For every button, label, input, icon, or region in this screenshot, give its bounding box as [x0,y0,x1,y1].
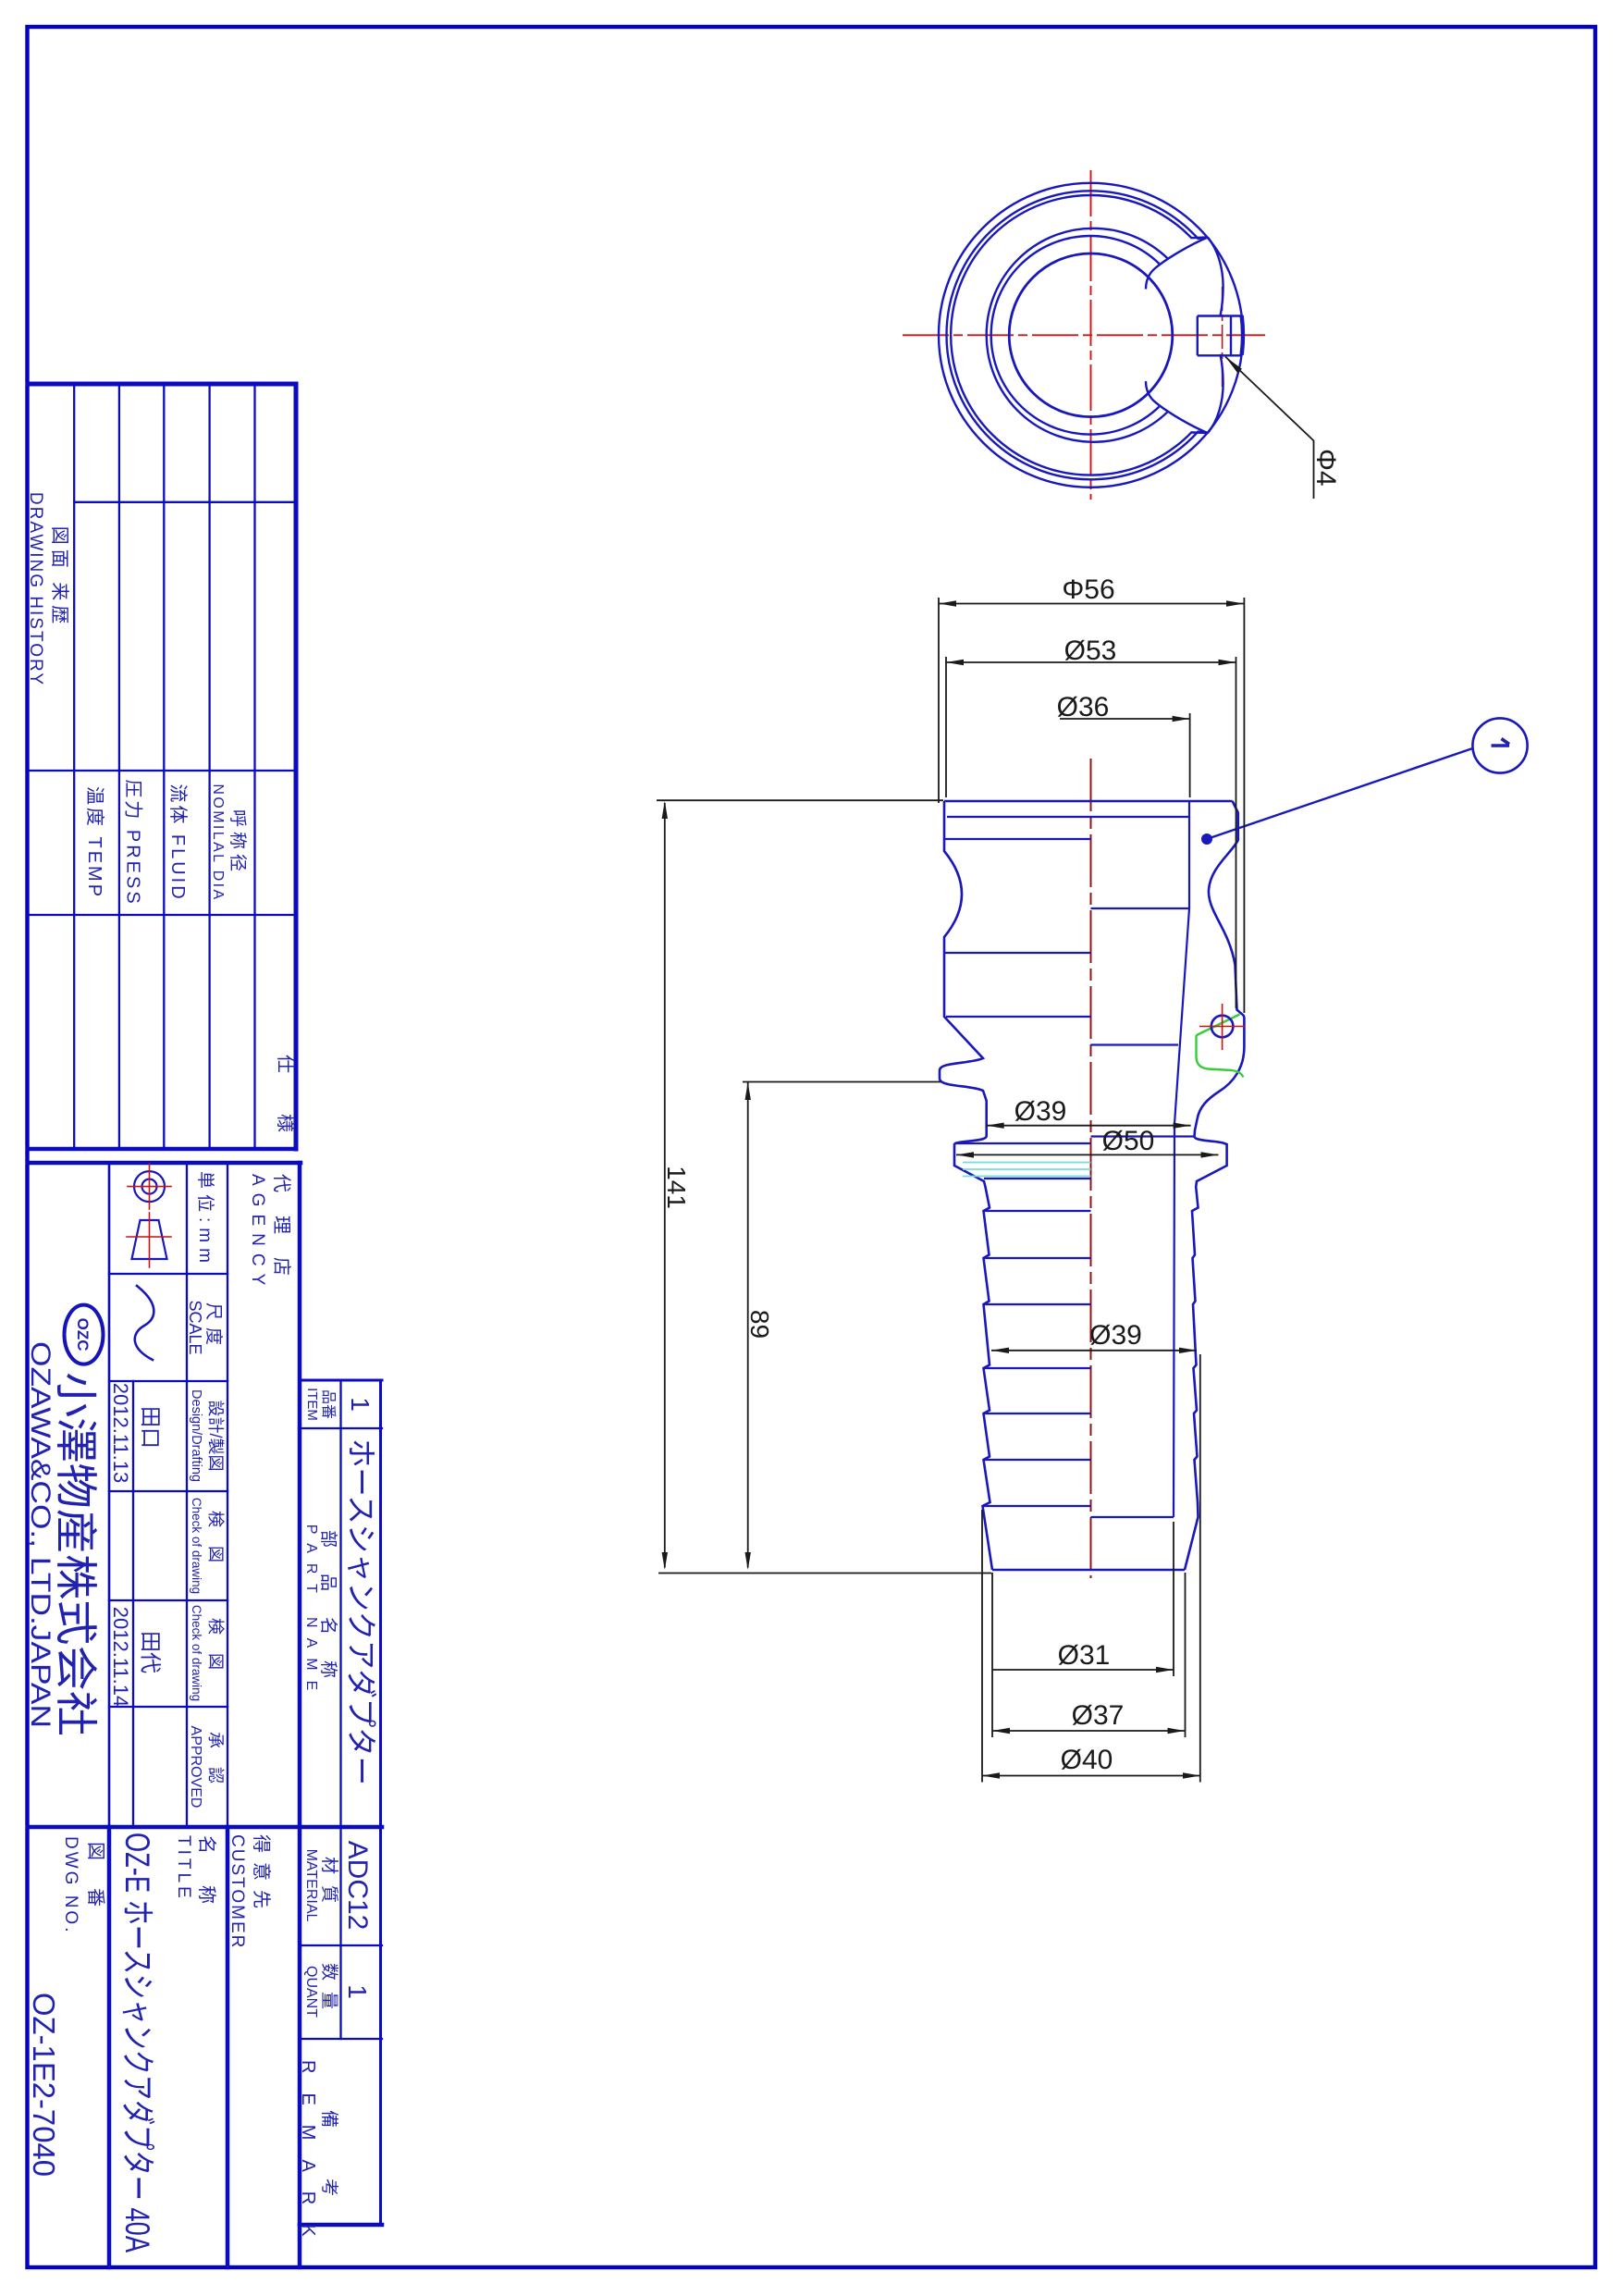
svg-text:小澤物産株式会社: 小澤物産株式会社 [52,1372,100,1736]
svg-text:図番: 図番 [85,1842,106,1934]
svg-text:Design/Drafting: Design/Drafting [189,1389,203,1482]
svg-text:DRAWING HISTORY: DRAWING HISTORY [26,492,45,686]
svg-text:Φ56: Φ56 [1062,574,1114,605]
svg-text:温度 TEMP: 温度 TEMP [84,786,105,899]
svg-text:Ø39: Ø39 [1089,1320,1142,1351]
svg-text:DWG NO.: DWG NO. [61,1836,80,1935]
svg-text:数量: 数量 [319,1963,339,2020]
svg-text:単位:mm: 単位:mm [195,1171,215,1268]
svg-text:2012.11.13: 2012.11.13 [109,1383,132,1483]
svg-text:Ø39: Ø39 [1014,1096,1067,1127]
svg-text:SCALE: SCALE [186,1300,204,1354]
svg-text:様: 様 [275,1114,296,1132]
svg-text:考: 考 [319,2179,339,2196]
svg-text:仕: 仕 [275,1055,296,1073]
svg-text:1: 1 [343,1984,372,1999]
svg-text:Ø50: Ø50 [1102,1126,1155,1156]
svg-text:呼称径: 呼称径 [227,809,248,876]
svg-text:ADC12: ADC12 [342,1841,373,1931]
svg-text:圧力 PRESS: 圧力 PRESS [123,779,144,906]
svg-text:設計/製図: 設計/製図 [206,1400,225,1471]
svg-text:図面 来歴: 図面 来歴 [49,526,70,629]
svg-text:Ø37: Ø37 [1072,1700,1125,1731]
svg-text:Check of drawing: Check of drawing [190,1605,203,1701]
svg-text:材質: 材質 [319,1857,339,1914]
svg-text:ITEM: ITEM [304,1388,320,1421]
svg-text:CUSTOMER: CUSTOMER [227,1834,247,1949]
svg-text:尺度: 尺度 [203,1302,224,1352]
svg-text:Φ4: Φ4 [1310,449,1341,487]
svg-text:部品名称: 部品名称 [318,1530,338,1704]
svg-text:TITLE: TITLE [174,1835,193,1902]
svg-text:検図: 検図 [206,1618,225,1688]
svg-text:89: 89 [745,1310,774,1339]
svg-text:PART NAME: PART NAME [303,1524,319,1701]
svg-text:1: 1 [346,1397,375,1412]
svg-text:検図: 検図 [206,1511,225,1581]
svg-text:141: 141 [662,1166,691,1209]
svg-text:田代: 田代 [139,1631,163,1673]
svg-text:備: 備 [319,2110,339,2128]
svg-text:OZ-1E2-7040: OZ-1E2-7040 [27,1993,61,2177]
svg-text:流体 FLUID: 流体 FLUID [167,784,189,901]
svg-text:OZ-E ホースシャンクアダプター 40A: OZ-E ホースシャンクアダプター 40A [118,1833,156,2253]
svg-text:AGENCY: AGENCY [248,1174,267,1292]
svg-text:承認: 承認 [206,1732,225,1802]
svg-text:QUANT: QUANT [303,1966,319,2018]
svg-text:Check of drawing: Check of drawing [190,1498,203,1594]
svg-text:得意先: 得意先 [251,1834,272,1918]
svg-text:2012.11.14: 2012.11.14 [109,1607,132,1707]
svg-text:REMARK: REMARK [298,2060,318,2256]
svg-text:Ø31: Ø31 [1058,1640,1111,1671]
svg-text:MATERIAL: MATERIAL [303,1849,319,1922]
svg-text:代理店: 代理店 [271,1174,292,1299]
svg-text:Ø36: Ø36 [1057,692,1110,722]
svg-text:OZC: OZC [74,1318,92,1352]
svg-text:田口: 田口 [139,1406,163,1449]
svg-text:ホースシャンクアダプター: ホースシャンクアダプター [344,1438,378,1785]
svg-text:Ø53: Ø53 [1064,636,1117,666]
svg-text:NOMILAL DIA: NOMILAL DIA [210,784,226,901]
svg-text:名称: 名称 [196,1835,217,1935]
svg-text:品番: 品番 [320,1389,337,1419]
svg-text:OZAWA&CO., LTD.JAPAN: OZAWA&CO., LTD.JAPAN [25,1341,55,1728]
svg-text:Ø40: Ø40 [1061,1745,1113,1775]
svg-text:APPROVED: APPROVED [188,1726,203,1808]
